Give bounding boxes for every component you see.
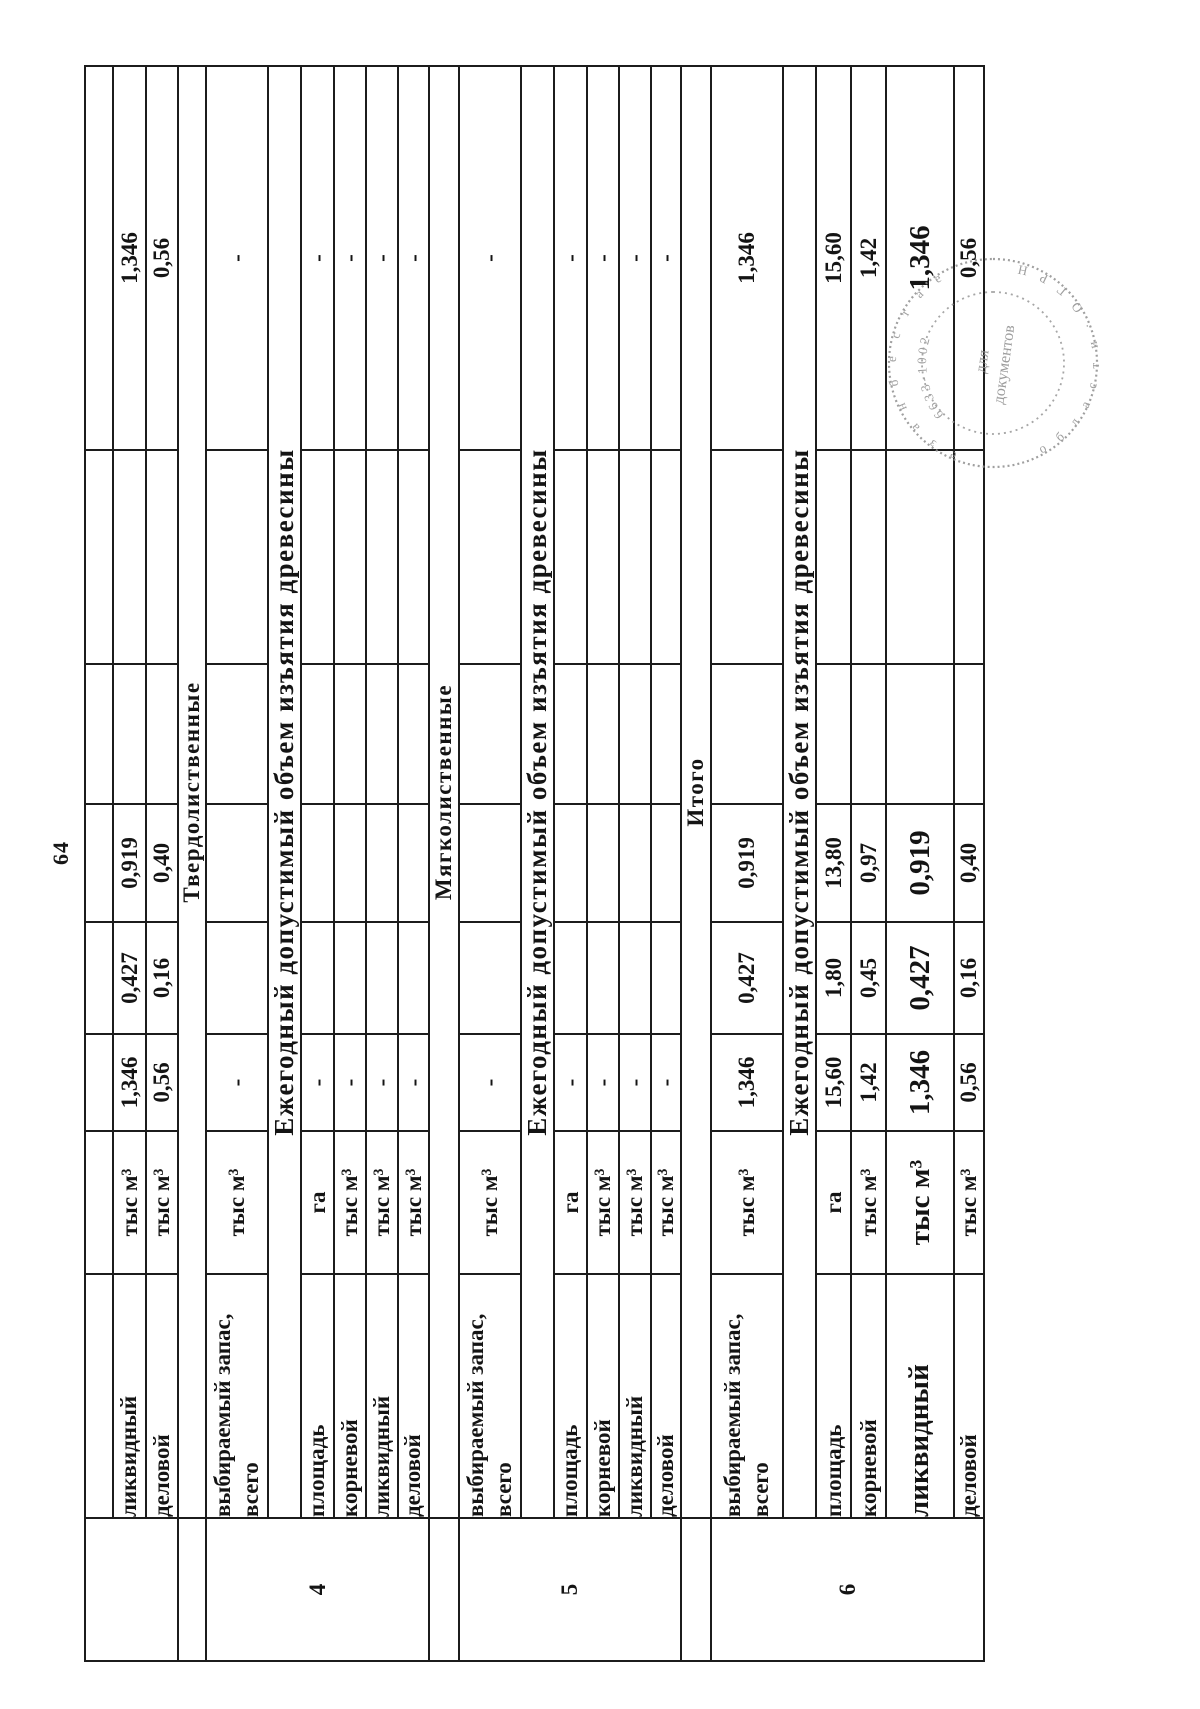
data-row: площадьга15,601,8013,8015,60	[816, 66, 851, 1661]
value-cell: 1,42	[851, 1034, 886, 1131]
value-cell	[651, 450, 681, 664]
value-cell	[619, 804, 651, 922]
subsection-header-row: Ежегодный допустимый объем изъятия древе…	[268, 66, 301, 1661]
value-cell: 0,97	[851, 804, 886, 922]
value-cell	[619, 450, 651, 664]
value-cell: 1,346	[113, 66, 146, 450]
value-cell: 1,346	[711, 66, 783, 450]
value-cell: -	[587, 1034, 619, 1131]
value-cell: -	[301, 66, 334, 450]
scanned-document-page: 64 ликвидныйтыс м³1,3460,4270,9191,346де…	[0, 0, 1200, 1709]
value-cell: -	[619, 66, 651, 450]
value-cell	[334, 804, 366, 922]
stamp-center-line1: для	[973, 348, 993, 374]
subsection-header-row: Ежегодный допустимый объем изъятия древе…	[521, 66, 554, 1661]
value-cell: -	[459, 66, 521, 450]
value-cell	[651, 804, 681, 922]
value-cell	[206, 804, 268, 922]
row-label-cell: деловой	[954, 1274, 984, 1518]
value-cell	[334, 664, 366, 804]
data-row: ликвидныйтыс м³--	[619, 66, 651, 1661]
value-cell: -	[651, 1034, 681, 1131]
data-row: 6выбираемый запас, всеготыс м³1,3460,427…	[711, 66, 783, 1661]
timber-volume-table: ликвидныйтыс м³1,3460,4270,9191,346делов…	[84, 65, 985, 1662]
svg-text:о б л а с т и · О Г Р Н: о б л а с т и · О Г Р Н	[1011, 261, 1102, 457]
value-cell: 0,56	[146, 1034, 178, 1131]
value-cell	[459, 922, 521, 1034]
value-cell: 0,427	[886, 922, 954, 1034]
value-cell: 1,346	[886, 1034, 954, 1131]
unit-cell: га	[301, 1131, 334, 1274]
row-label-cell: площадь	[301, 1274, 334, 1518]
value-cell	[554, 450, 587, 664]
row-number-cell	[681, 1518, 711, 1661]
row-label-cell: выбираемый запас, всего	[711, 1274, 783, 1518]
value-cell	[206, 922, 268, 1034]
value-cell	[398, 450, 429, 664]
section-title-cell: Мягколиственные	[429, 66, 459, 1518]
value-cell	[334, 922, 366, 1034]
ghost-cell	[85, 804, 113, 922]
unit-cell: тыс м³	[146, 1131, 178, 1274]
stamp-center-line2: документов	[990, 324, 1018, 406]
value-cell	[554, 922, 587, 1034]
value-cell	[587, 804, 619, 922]
value-cell: -	[554, 1034, 587, 1131]
unit-cell: тыс м³	[587, 1131, 619, 1274]
ghost-cell	[85, 1131, 113, 1274]
data-row: площадьга--	[554, 66, 587, 1661]
value-cell	[301, 922, 334, 1034]
data-row: площадьга--	[301, 66, 334, 1661]
value-cell	[398, 804, 429, 922]
value-cell: -	[587, 66, 619, 450]
value-cell	[334, 450, 366, 664]
unit-cell: га	[816, 1131, 851, 1274]
value-cell: -	[619, 1034, 651, 1131]
value-cell: -	[206, 66, 268, 450]
value-cell: 0,16	[146, 922, 178, 1034]
section-title-cell: Итого	[681, 66, 711, 1518]
value-cell	[816, 450, 851, 664]
value-cell	[206, 450, 268, 664]
data-row: 4выбираемый запас, всеготыс м³--	[206, 66, 268, 1661]
value-cell	[711, 450, 783, 664]
row-number-cell: 5	[459, 1518, 681, 1661]
value-cell	[206, 664, 268, 804]
value-cell	[886, 664, 954, 804]
value-cell: 0,919	[113, 804, 146, 922]
subsection-header-row: Ежегодный допустимый объем изъятия древе…	[783, 66, 816, 1661]
section-title-cell: Твердолиственные	[178, 66, 206, 1518]
data-row: корневойтыс м³--	[587, 66, 619, 1661]
value-cell: 0,56	[954, 1034, 984, 1131]
data-row: деловойтыс м³--	[398, 66, 429, 1661]
value-cell	[587, 664, 619, 804]
row-label-cell: площадь	[816, 1274, 851, 1518]
subsection-title-cell: Ежегодный допустимый объем изъятия древе…	[268, 66, 301, 1518]
value-cell	[619, 922, 651, 1034]
value-cell	[711, 664, 783, 804]
value-cell: 13,80	[816, 804, 851, 922]
unit-cell: тыс м³	[619, 1131, 651, 1274]
value-cell	[816, 664, 851, 804]
value-cell	[398, 664, 429, 804]
row-label-cell: корневой	[334, 1274, 366, 1518]
row-label-cell: ликвидный	[113, 1274, 146, 1518]
spacer-cell	[85, 1274, 113, 1518]
value-cell	[619, 664, 651, 804]
value-cell	[113, 664, 146, 804]
value-cell: 0,56	[146, 66, 178, 450]
row-label-cell: корневой	[587, 1274, 619, 1518]
row-label-cell: ликвидный	[619, 1274, 651, 1518]
data-row: деловойтыс м³--	[651, 66, 681, 1661]
row-label-cell: деловой	[398, 1274, 429, 1518]
data-row: ликвидныйтыс м³1,3460,4270,9191,346	[113, 66, 146, 1661]
rotated-page-canvas: 64 ликвидныйтыс м³1,3460,4270,9191,346де…	[0, 0, 1200, 1709]
value-cell: -	[334, 1034, 366, 1131]
row-label-cell: деловой	[146, 1274, 178, 1518]
unit-cell: тыс м³	[334, 1131, 366, 1274]
value-cell	[301, 664, 334, 804]
value-cell	[398, 922, 429, 1034]
section-header-row: Твердолиственные	[178, 66, 206, 1661]
data-row: ликвидныйтыс м³--	[366, 66, 398, 1661]
value-cell: -	[206, 1034, 268, 1131]
row-number-cell	[178, 1518, 206, 1661]
value-cell: 0,45	[851, 922, 886, 1034]
ghost-cell	[85, 450, 113, 664]
row-label-cell: ликвидный	[366, 1274, 398, 1518]
row-label-cell: деловой	[651, 1274, 681, 1518]
value-cell: -	[334, 66, 366, 450]
row-label-cell: корневой	[851, 1274, 886, 1518]
value-cell	[554, 804, 587, 922]
ghost-cell	[85, 922, 113, 1034]
value-cell	[146, 450, 178, 664]
value-cell	[459, 664, 521, 804]
value-cell	[113, 450, 146, 664]
value-cell	[366, 922, 398, 1034]
table-body: ликвидныйтыс м³1,3460,4270,9191,346делов…	[85, 66, 984, 1661]
data-row: корневойтыс м³--	[334, 66, 366, 1661]
value-cell	[301, 450, 334, 664]
page-number: 64	[48, 793, 74, 913]
subsection-title-cell: Ежегодный допустимый объем изъятия древе…	[521, 66, 554, 1518]
row-number-cell: 4	[206, 1518, 429, 1661]
value-cell: 0,919	[711, 804, 783, 922]
unit-cell: тыс м³	[206, 1131, 268, 1274]
data-row: деловойтыс м³0,560,160,400,56	[146, 66, 178, 1661]
value-cell	[651, 664, 681, 804]
value-cell: 0,16	[954, 922, 984, 1034]
unit-cell: га	[554, 1131, 587, 1274]
value-cell	[459, 450, 521, 664]
unit-cell: тыс м³	[651, 1131, 681, 1274]
value-cell: -	[459, 1034, 521, 1131]
value-cell	[651, 922, 681, 1034]
section-header-row: Мягколиственные	[429, 66, 459, 1661]
value-cell	[366, 804, 398, 922]
row-label-cell: выбираемый запас, всего	[206, 1274, 268, 1518]
stamp-ring-bottom-text: о б л а с т и · О Г Р Н	[1011, 261, 1102, 457]
value-cell: 1,346	[711, 1034, 783, 1131]
ghost-cell	[85, 664, 113, 804]
row-number-cell	[429, 1518, 459, 1661]
subsection-title-cell: Ежегодный допустимый объем изъятия древе…	[783, 66, 816, 1518]
ghost-cell	[85, 1034, 113, 1131]
value-cell: 15,60	[816, 1034, 851, 1131]
row-number-cell	[85, 1518, 178, 1661]
value-cell	[587, 450, 619, 664]
row-label-cell: выбираемый запас, всего	[459, 1274, 521, 1518]
row-label-cell: площадь	[554, 1274, 587, 1518]
value-cell: 0,919	[886, 804, 954, 922]
stamp-digits: 6633-1002	[914, 333, 946, 422]
value-cell: 0,427	[113, 922, 146, 1034]
ghost-cell	[85, 66, 113, 450]
value-cell: 0,40	[954, 804, 984, 922]
value-cell	[554, 664, 587, 804]
value-cell: -	[651, 66, 681, 450]
unit-cell: тыс м³	[886, 1131, 954, 1274]
unit-cell: тыс м³	[113, 1131, 146, 1274]
value-cell	[851, 664, 886, 804]
value-cell: 1,80	[816, 922, 851, 1034]
value-cell	[366, 450, 398, 664]
value-cell	[587, 922, 619, 1034]
value-cell	[146, 664, 178, 804]
unit-cell: тыс м³	[851, 1131, 886, 1274]
value-cell: -	[398, 1034, 429, 1131]
value-cell: -	[398, 66, 429, 450]
section-header-row: Итого	[681, 66, 711, 1661]
unit-cell: тыс м³	[366, 1131, 398, 1274]
spacer-row	[85, 66, 113, 1661]
value-cell: 0,40	[146, 804, 178, 922]
svg-text:6633-1002: 6633-1002	[914, 333, 946, 422]
unit-cell: тыс м³	[459, 1131, 521, 1274]
value-cell: 0,427	[711, 922, 783, 1034]
value-cell	[954, 664, 984, 804]
value-cell: -	[301, 1034, 334, 1131]
value-cell	[301, 804, 334, 922]
value-cell: -	[366, 66, 398, 450]
value-cell: -	[554, 66, 587, 450]
unit-cell: тыс м³	[711, 1131, 783, 1274]
data-row: 5выбираемый запас, всеготыс м³--	[459, 66, 521, 1661]
value-cell: -	[366, 1034, 398, 1131]
row-label-cell: ликвидный	[886, 1274, 954, 1518]
row-number-cell: 6	[711, 1518, 984, 1661]
unit-cell: тыс м³	[398, 1131, 429, 1274]
unit-cell: тыс м³	[954, 1131, 984, 1274]
value-cell: 15,60	[816, 66, 851, 450]
round-stamp: е з а н б е с т а е о б л а с т и · О Г …	[863, 233, 1123, 493]
value-cell: 1,346	[113, 1034, 146, 1131]
stamp-center-text-group: для документов	[969, 321, 1019, 406]
value-cell	[366, 664, 398, 804]
value-cell	[459, 804, 521, 922]
